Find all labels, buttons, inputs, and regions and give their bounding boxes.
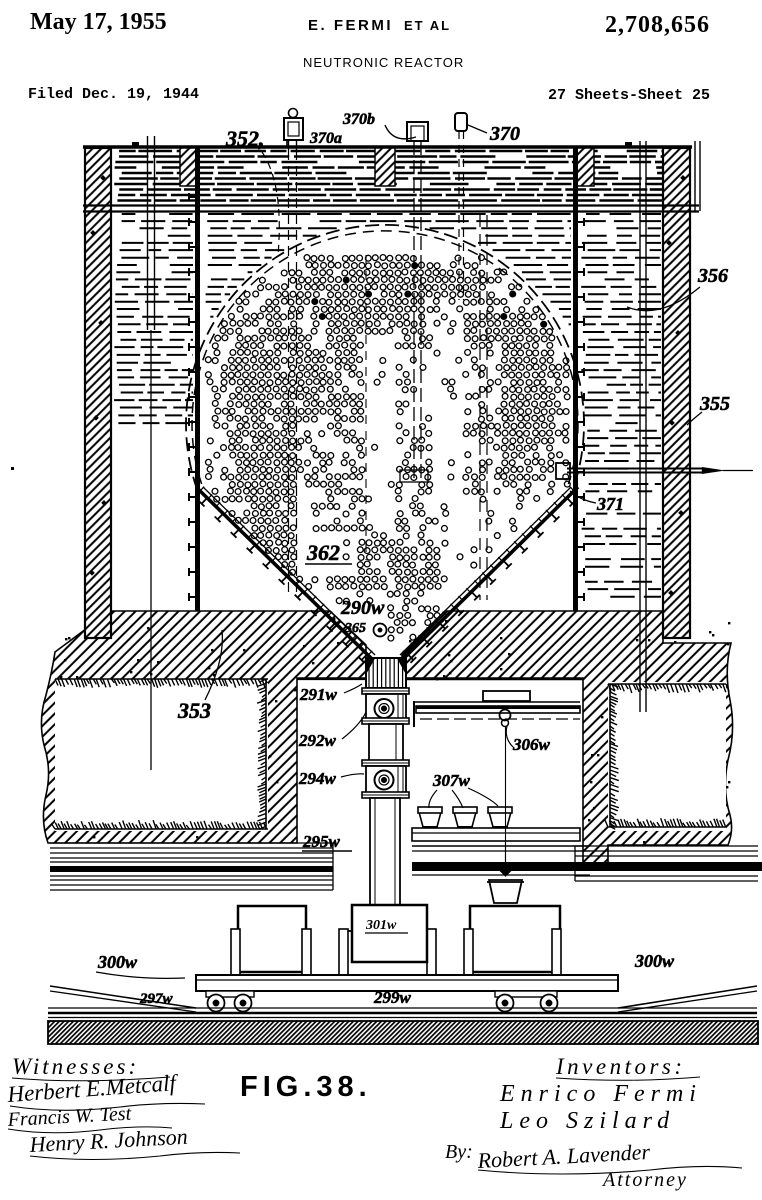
svg-text:May 17, 1955: May 17, 1955 (30, 9, 167, 35)
svg-text:27 Sheets-Sheet 25: 27 Sheets-Sheet 25 (548, 87, 710, 104)
svg-text:371: 371 (596, 494, 624, 514)
svg-text:362: 362 (306, 540, 340, 565)
svg-text:370b: 370b (342, 111, 375, 128)
svg-text:Enrico Fermi: Enrico Fermi (499, 1081, 702, 1107)
svg-text:NEUTRONIC REACTOR: NEUTRONIC REACTOR (303, 55, 464, 70)
svg-text:353: 353 (177, 698, 211, 723)
svg-text:2,708,656: 2,708,656 (605, 12, 710, 38)
svg-text:355: 355 (699, 393, 730, 415)
svg-text:306w: 306w (512, 735, 551, 754)
svg-text:292w: 292w (298, 731, 337, 750)
svg-text:370a: 370a (309, 130, 342, 147)
svg-text:FIG.38.: FIG.38. (240, 1071, 372, 1103)
svg-text:295w: 295w (302, 832, 341, 851)
svg-text:ET AL: ET AL (404, 18, 451, 33)
svg-text:352,: 352, (225, 126, 265, 151)
svg-text:By:: By: (445, 1141, 473, 1163)
svg-text:365: 365 (344, 621, 366, 636)
svg-text:301w: 301w (365, 918, 397, 933)
svg-text:Filed Dec. 19, 1944: Filed Dec. 19, 1944 (28, 86, 199, 103)
svg-text:294w: 294w (298, 769, 337, 788)
svg-text:E. FERMI: E. FERMI (308, 17, 393, 34)
svg-text:300w: 300w (97, 952, 138, 972)
svg-text:307w: 307w (432, 771, 471, 790)
svg-text:356: 356 (697, 265, 728, 287)
svg-text:299w: 299w (373, 988, 412, 1007)
svg-text:290w: 290w (340, 597, 385, 619)
svg-text:297w: 297w (139, 991, 174, 1007)
svg-text:300w: 300w (634, 951, 675, 971)
svg-text:370: 370 (489, 123, 520, 145)
svg-text:Leo Szilard: Leo Szilard (499, 1108, 675, 1134)
svg-text:291w: 291w (299, 685, 338, 704)
svg-text:Inventors:: Inventors: (555, 1054, 686, 1079)
